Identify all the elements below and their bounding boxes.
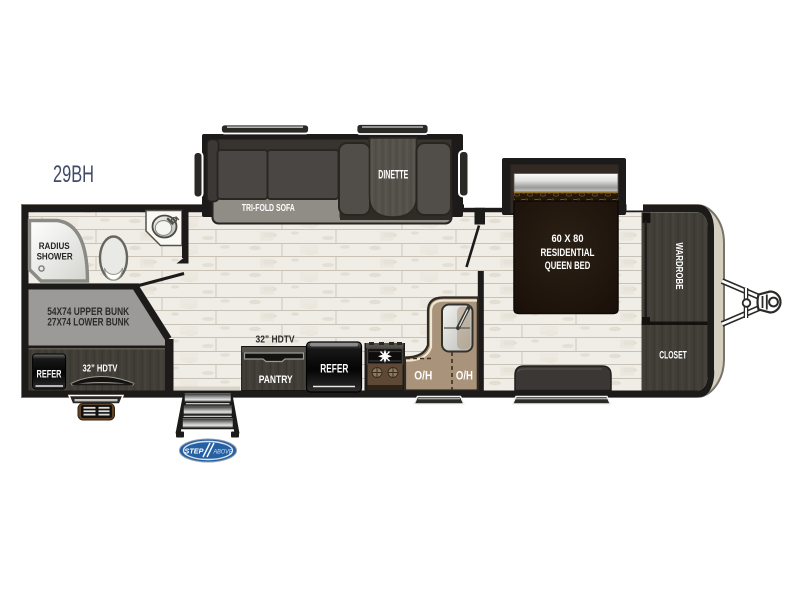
svg-text:REFER: REFER xyxy=(320,361,348,375)
svg-text:RADIUS: RADIUS xyxy=(39,241,70,252)
svg-text:TRI-FOLD SOFA: TRI-FOLD SOFA xyxy=(242,203,295,214)
svg-text:REFER: REFER xyxy=(37,369,62,381)
svg-text:WARDROBE: WARDROBE xyxy=(673,243,684,290)
svg-text:27X74 LOWER BUNK: 27X74 LOWER BUNK xyxy=(47,317,129,329)
svg-text:STEP: STEP xyxy=(185,447,204,456)
svg-text:O/H: O/H xyxy=(456,369,473,383)
svg-text:PANTRY: PANTRY xyxy=(259,374,294,386)
svg-text:32” HDTV: 32” HDTV xyxy=(83,363,118,374)
svg-text:SHOWER: SHOWER xyxy=(37,252,73,263)
svg-text:DINETTE: DINETTE xyxy=(378,170,408,182)
svg-text:ABOVE: ABOVE xyxy=(213,449,234,456)
svg-text:O/H: O/H xyxy=(414,369,432,383)
svg-text:CLOSET: CLOSET xyxy=(659,350,687,362)
svg-text:29BH: 29BH xyxy=(53,161,94,188)
svg-text:RESIDENTIAL: RESIDENTIAL xyxy=(541,247,595,259)
svg-text:32” HDTV: 32” HDTV xyxy=(256,334,295,345)
svg-text:60 X 80: 60 X 80 xyxy=(552,233,584,245)
svg-text:QUEEN BED: QUEEN BED xyxy=(545,260,591,272)
